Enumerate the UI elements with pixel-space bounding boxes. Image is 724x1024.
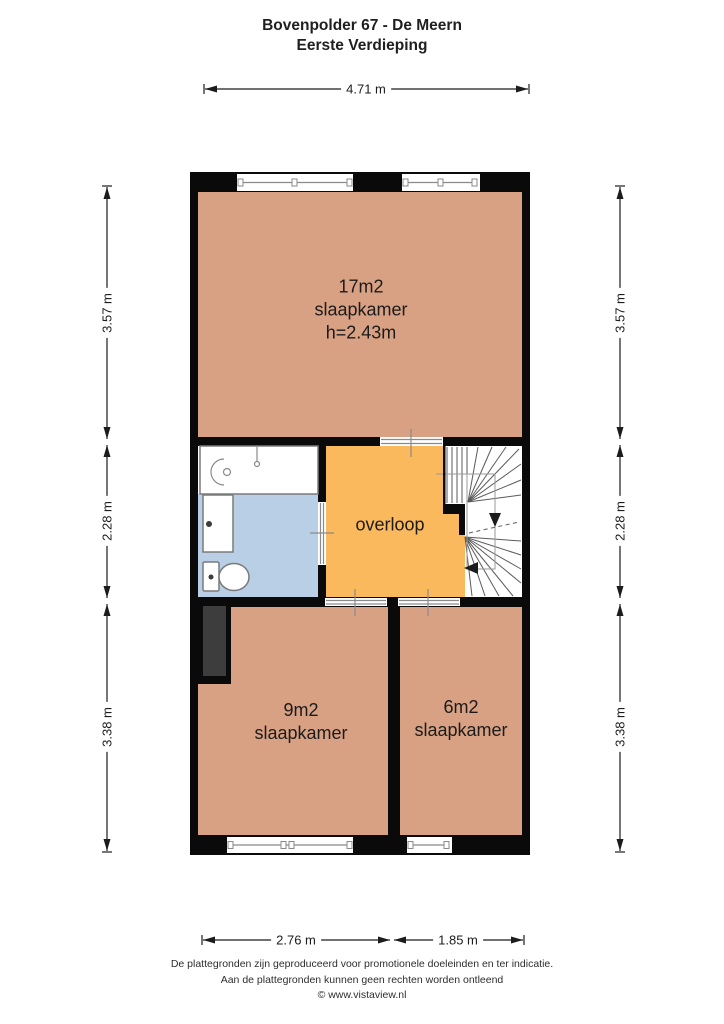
window-bottom-left bbox=[227, 837, 353, 853]
bedroom-small-name: slaapkamer bbox=[414, 719, 507, 742]
bedroom-large-label: 17m2 slaapkamer h=2.43m bbox=[314, 276, 407, 345]
shower-tray bbox=[203, 495, 233, 552]
disclaimer-line1: De plattegronden zijn geproduceerd voor … bbox=[0, 957, 724, 973]
bedroom-medium-name: slaapkamer bbox=[254, 722, 347, 745]
dimension-label-left-middle: 2.28 m bbox=[100, 496, 115, 546]
stair-stub-wall-h bbox=[443, 504, 465, 514]
dimension-label-bottom-left: 2.76 m bbox=[271, 933, 321, 948]
bedroom-large-ceiling: h=2.43m bbox=[314, 322, 407, 345]
landing-label: overloop bbox=[355, 514, 424, 537]
plan-header: Bovenpolder 67 - De Meern Eerste Verdiep… bbox=[0, 16, 724, 56]
disclaimer-line2: Aan de plattegronden kunnen geen rechten… bbox=[0, 973, 724, 989]
bathtub bbox=[200, 446, 318, 494]
dimension-label-right-top: 3.57 m bbox=[613, 288, 628, 338]
copyright-line: © www.vistaview.nl bbox=[0, 988, 724, 1004]
floorplan-page: Bovenpolder 67 - De Meern Eerste Verdiep… bbox=[0, 0, 724, 1024]
dimension-label-top-width: 4.71 m bbox=[341, 82, 391, 97]
bedroom-medium-label: 9m2 slaapkamer bbox=[254, 699, 347, 745]
dimension-label-right-middle: 2.28 m bbox=[613, 496, 628, 546]
window-bottom-right bbox=[407, 837, 452, 853]
dimension-label-left-top: 3.57 m bbox=[100, 288, 115, 338]
window-top-left bbox=[237, 174, 353, 191]
dimension-label-bottom-right: 1.85 m bbox=[433, 933, 483, 948]
page-subtitle: Eerste Verdieping bbox=[0, 36, 724, 56]
page-title: Bovenpolder 67 - De Meern bbox=[0, 16, 724, 36]
stair-stub-wall-v bbox=[459, 514, 465, 535]
bedroom-large-area: 17m2 bbox=[314, 276, 407, 299]
disclaimer: De plattegronden zijn geproduceerd voor … bbox=[0, 957, 724, 1004]
toilet bbox=[203, 562, 249, 591]
bedroom-small-area: 6m2 bbox=[414, 696, 507, 719]
stair-divider-wall bbox=[443, 446, 446, 504]
dimension-label-left-bottom: 3.38 m bbox=[100, 702, 115, 752]
bedroom-small-label: 6m2 slaapkamer bbox=[414, 696, 507, 742]
bedroom-large-name: slaapkamer bbox=[314, 299, 407, 322]
bedroom-medium-area: 9m2 bbox=[254, 699, 347, 722]
duct bbox=[198, 600, 231, 684]
window-top-right bbox=[402, 174, 480, 191]
dimension-label-right-bottom: 3.38 m bbox=[613, 702, 628, 752]
